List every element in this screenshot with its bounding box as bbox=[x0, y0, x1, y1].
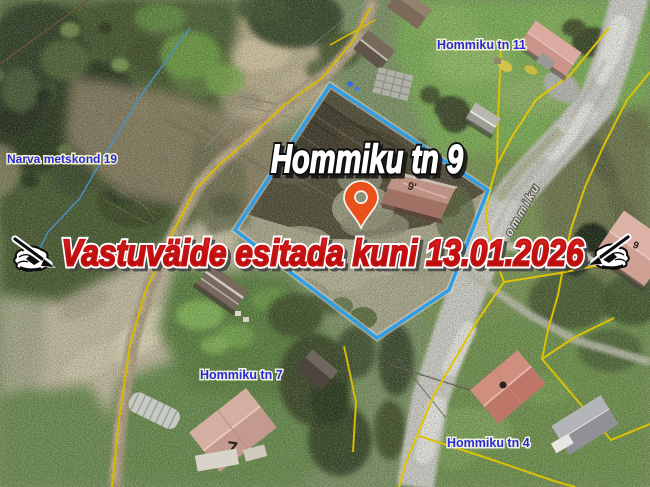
svg-text:Narva metskond 19: Narva metskond 19 bbox=[7, 152, 117, 166]
svg-text:Vastuväide esitada kuni 13.01.: Vastuväide esitada kuni 13.01.2026 bbox=[62, 232, 585, 274]
svg-text:Hommiku tn 9: Hommiku tn 9 bbox=[271, 138, 464, 182]
svg-text:Hommiku tn 7: Hommiku tn 7 bbox=[200, 368, 283, 382]
svg-text:Hommiku tn 4: Hommiku tn 4 bbox=[447, 436, 530, 450]
svg-text:Hommiku tn 11: Hommiku tn 11 bbox=[437, 38, 526, 52]
